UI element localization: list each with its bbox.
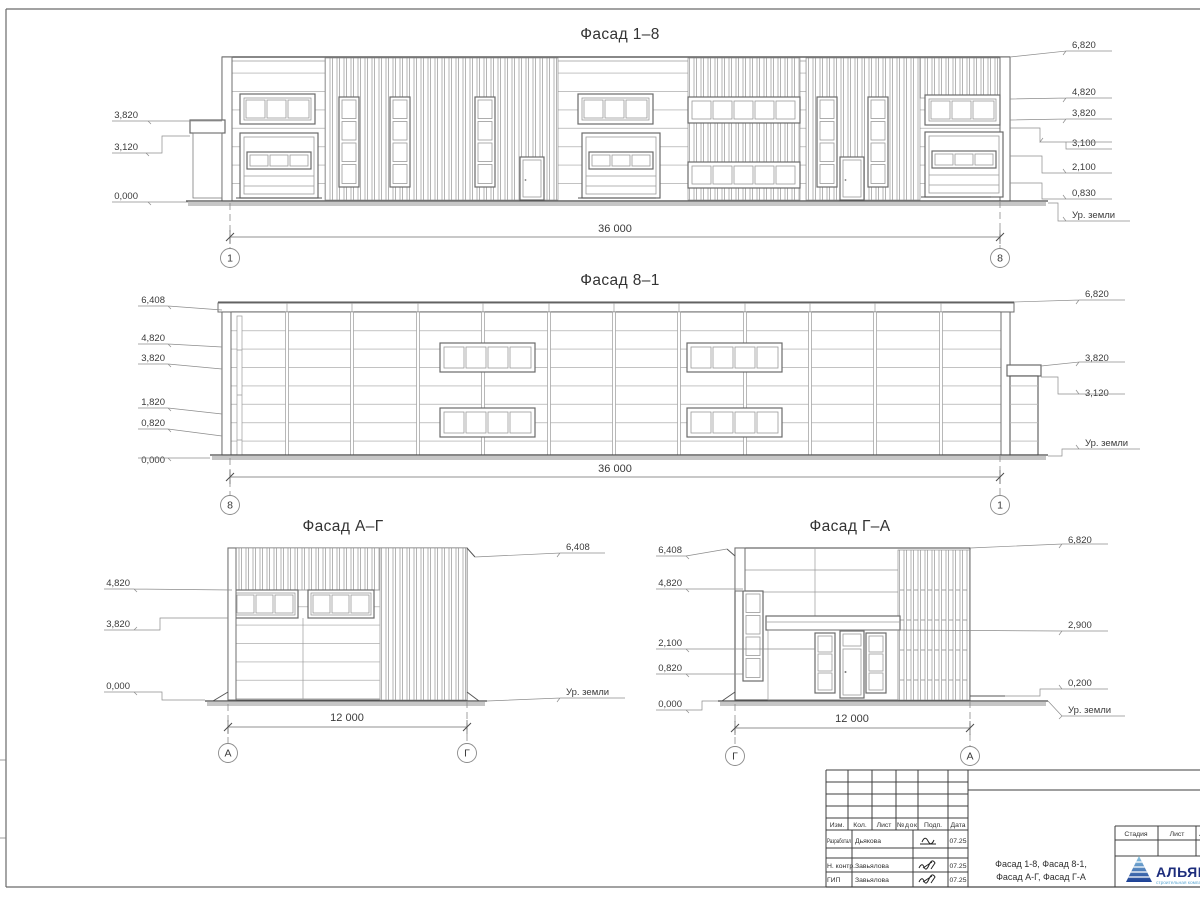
elevation-mark: 6,820 [1085,289,1109,300]
role-label: Н. контр. [827,863,855,870]
elevation-mark: 0,000 [114,191,138,202]
facade-g-a-view: Фасад Г–А 6,408 4,820 2,100 0,820 0,000 [656,518,1125,766]
axis-bubble-g: Г [726,747,745,766]
elevation-mark: 6,408 [566,542,590,553]
facade-drawing-svg: Фасад 1–8 3,820 3,120 [0,0,1200,900]
title-block-signature-rows: Разработал Дьякова 07.25 Н. контр. Завья… [827,837,967,884]
col-header: Подп. [924,822,942,829]
elevation-mark: 0,830 [1072,188,1096,199]
window-band [687,343,782,372]
sign-date: 07.25 [949,877,966,884]
elevation-mark: 3,820 [106,619,130,630]
svg-text:Г: Г [464,748,470,760]
elevation-mark: 3,120 [1085,388,1109,399]
sheet-header: Лист [1170,831,1185,838]
svg-text:8: 8 [227,500,233,512]
facade-g-a-dimension: 12 000 Г А [726,701,980,766]
window-band [578,94,653,124]
garage-door [582,133,660,198]
elevation-mark: 4,820 [1072,87,1096,98]
sign-date: 07.25 [949,863,966,870]
col-header: Лист [877,822,892,829]
elevation-mark: 3,820 [1072,108,1096,119]
facade-1-8-drawing [186,57,1048,204]
tall-window [475,97,495,187]
col-header: №док [897,822,917,829]
role-label: ГИП [827,877,841,884]
facade-g-a-title: Фасад Г–А [809,518,890,535]
elevation-mark: 2,900 [1068,620,1092,631]
person-name: Завьялова [855,863,889,870]
entrance-door [840,157,864,200]
entrance-door [520,157,544,200]
garage-door [240,133,318,198]
entrance-door [840,631,864,698]
axis-bubble-8: 8 [991,249,1010,268]
svg-text:1: 1 [227,253,233,265]
elevation-mark: 0,820 [141,418,165,429]
col-header: Изм. [830,822,845,829]
facade-a-g-title: Фасад А–Г [302,518,383,535]
annex-grid [193,133,222,198]
axis-bubble-a: А [961,747,980,766]
window-band [308,590,374,618]
facade-a-g-left-marks: 4,820 3,820 0,000 [104,578,232,700]
facade-1-8-title: Фасад 1–8 [580,26,660,43]
sign-date: 07.25 [949,838,966,845]
signature [920,838,936,844]
dimension-value: 36 000 [598,463,632,475]
svg-text:1: 1 [997,500,1003,512]
person-name: Дьякова [855,838,881,845]
elevation-mark: 3,100 [1072,138,1096,149]
tall-window [390,97,410,187]
garage-door [925,132,1003,197]
ground-level-label: Ур. земли [1068,705,1111,716]
svg-text:А: А [966,751,973,763]
facade-8-1-left-marks: 6,408 4,820 3,820 1,820 0,820 0,000 [138,295,222,466]
signature [919,861,935,869]
elevation-mark: 2,100 [658,638,682,649]
elevation-mark: 0,820 [658,663,682,674]
title-block-change-header: Изм. Кол. Лист №док Подп. Дата [830,822,966,829]
sidelight-window [866,633,886,693]
facade-8-1-view: Фасад 8–1 6,408 4,820 3,820 1,820 [138,272,1140,515]
ground-level-label: Ур. земли [566,687,609,698]
company-logo: АЛЬЯНС строительная компания [1126,856,1200,886]
dimension-value: 12 000 [835,713,869,725]
elevation-mark: 0,000 [141,455,165,466]
axis-bubble-1: 1 [221,249,240,268]
signature [919,875,935,883]
svg-text:А: А [224,748,231,760]
window-band [440,408,535,437]
window-band [440,343,535,372]
title-block: Изм. Кол. Лист №док Подп. Дата Разработа… [826,770,1200,887]
window-strip [688,97,800,123]
facade-a-g-dimension: 12 000 А Г [219,701,477,763]
logo-text: АЛЬЯНС [1156,864,1200,880]
person-name: Завьялова [855,877,889,884]
col-header: Дата [950,822,965,829]
col-header: Кол. [853,822,867,829]
elevation-mark: 4,820 [106,578,130,589]
facade-1-8-view: Фасад 1–8 3,820 3,120 [112,26,1130,268]
dimension-value: 12 000 [330,712,364,724]
sidelight-window [815,633,835,693]
entrance-canopy [766,616,900,630]
elevation-mark: 2,100 [1072,162,1096,173]
facade-8-1-title: Фасад 8–1 [580,272,660,289]
doc-title-line1: Фасад 1-8, Фасад 8-1, [995,859,1087,869]
stage-header: Стадия [1124,831,1147,838]
elevation-mark: 3,820 [114,110,138,121]
elevation-mark: 1,820 [141,397,165,408]
tall-window [743,591,763,681]
downpipe [237,316,242,455]
elevation-mark: 6,408 [658,545,682,556]
window-band [240,94,315,124]
elevation-mark: 0,000 [106,681,130,692]
title-block-doc-title: Фасад 1-8, Фасад 8-1, Фасад А-Г, Фасад Г… [995,859,1087,882]
facade-8-1-drawing [210,302,1048,458]
elevation-mark: 3,120 [114,142,138,153]
window-band [232,590,298,618]
elevation-mark: 6,820 [1072,40,1096,51]
tall-window [339,97,359,187]
ground-level-label: Ур. земли [1085,438,1128,449]
facade-a-g-view: Фасад А–Г 4,820 3,820 0,000 6,408 Ур. зе… [104,518,625,763]
facade-a-g-drawing [205,548,487,704]
elevation-mark: 6,408 [141,295,165,306]
axis-bubble-g: Г [458,744,477,763]
elevation-mark: 4,820 [141,333,165,344]
facade-a-g-right-marks: 6,408 Ур. земли [475,542,625,702]
window-band [687,408,782,437]
facade-1-8-right-marks: 6,820 4,820 3,820 3,100 2,100 0,830 Ур. … [1010,40,1130,221]
axis-bubble-1: 1 [991,496,1010,515]
annex-canopy [1007,365,1041,376]
axis-bubble-a: А [219,744,238,763]
ground-level-label: Ур. земли [1072,210,1115,221]
tall-window [868,97,888,187]
title-block-stage-cells: Стадия Лист Листов [1124,831,1200,838]
window-strip [688,162,800,188]
annex-canopy [190,120,225,133]
drawing-sheet: Фасад 1–8 3,820 3,120 [0,0,1200,900]
facade-g-a-drawing [718,548,1048,704]
elevation-mark: 0,000 [658,699,682,710]
elevation-mark: 0,200 [1068,678,1092,689]
axis-bubble-8: 8 [221,496,240,515]
facade-1-8-dimension: 36 000 1 8 [221,201,1010,268]
elevation-mark: 3,820 [141,353,165,364]
role-label: Разработал [827,837,851,845]
elevation-mark: 4,820 [658,578,682,589]
svg-text:8: 8 [997,253,1003,265]
tall-window [817,97,837,187]
window-band [925,95,1000,125]
dimension-value: 36 000 [598,223,632,235]
doc-title-line2: Фасад А-Г, Фасад Г-А [996,872,1086,882]
svg-text:Г: Г [732,751,738,763]
facade-8-1-dimension: 36 000 8 1 [221,455,1010,515]
logo-subtext: строительная компания [1156,881,1200,886]
logo-pyramid-icon [1126,856,1152,882]
